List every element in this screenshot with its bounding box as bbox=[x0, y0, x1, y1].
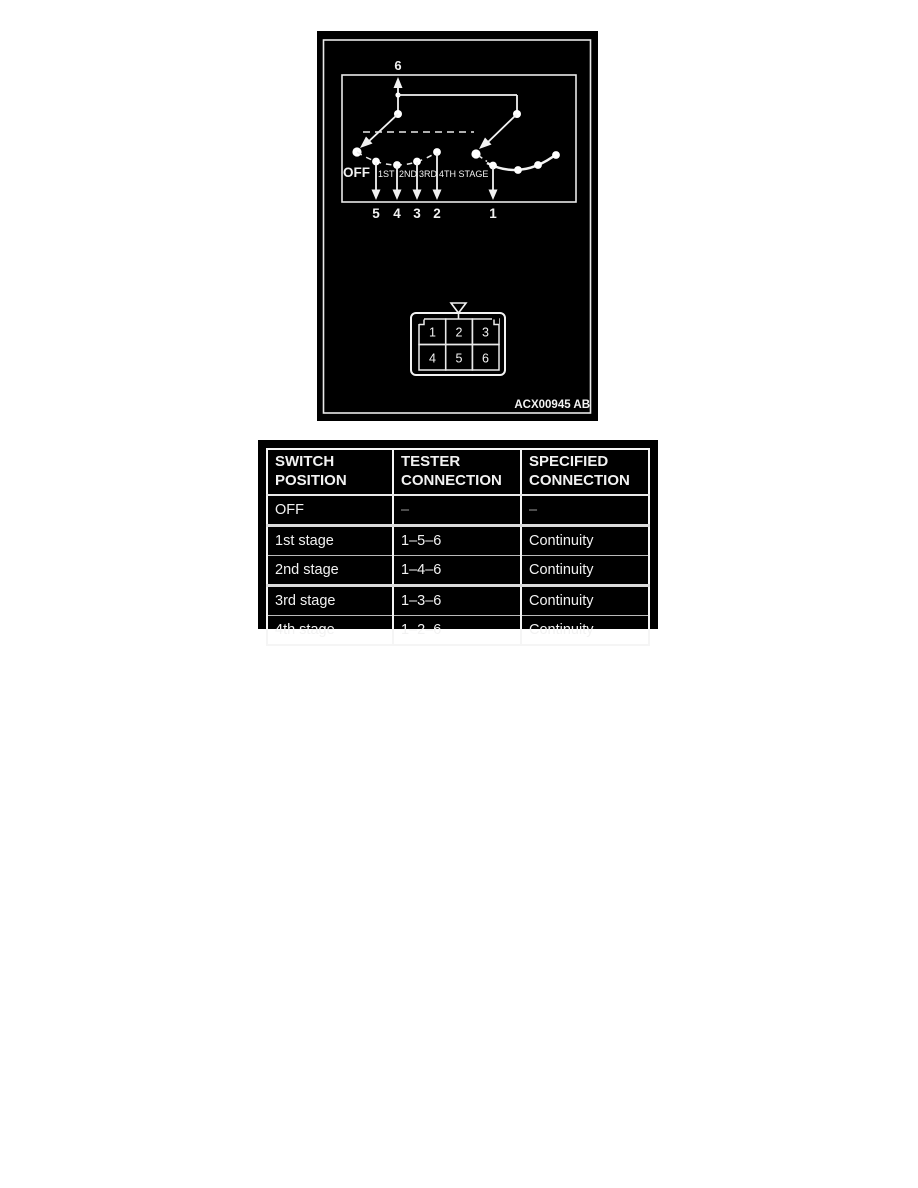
table-row-4th-stage: 4th stage 1–2–6 Continuity bbox=[267, 616, 649, 646]
pin-2-label: 2 bbox=[456, 326, 463, 340]
pin-3-label: 3 bbox=[482, 326, 489, 340]
left-wiper-arrow-icon bbox=[360, 137, 373, 149]
terminal-4-label: 4 bbox=[393, 206, 401, 221]
terminal-1-label: 1 bbox=[489, 206, 497, 221]
header-switch-position: SWITCH POSITION bbox=[267, 449, 393, 495]
right-wiper-arrow-icon bbox=[479, 138, 492, 150]
stage-label-4th: 4TH STAGE bbox=[439, 169, 488, 179]
cell-specified: – bbox=[521, 495, 649, 526]
cell-tester: 1–3–6 bbox=[393, 586, 521, 616]
table-header-row: SWITCH POSITION TESTER CONNECTION SPECIF… bbox=[267, 449, 649, 495]
cell-position: 3rd stage bbox=[267, 586, 393, 616]
right-contact-dot-b bbox=[514, 166, 522, 174]
pin-5-label: 5 bbox=[456, 352, 463, 366]
cell-specified: Continuity bbox=[521, 556, 649, 586]
cell-tester: – bbox=[393, 495, 521, 526]
table-row-off: OFF – – bbox=[267, 495, 649, 526]
stage-label-3rd: 3RD bbox=[419, 169, 438, 179]
switch-schematic-figure: 6 OFF 1ST 2ND bbox=[317, 31, 598, 421]
right-wiper-arm bbox=[486, 114, 517, 144]
continuity-table-panel: SWITCH POSITION TESTER CONNECTION SPECIF… bbox=[258, 440, 658, 629]
left-wiper-arm bbox=[367, 114, 398, 143]
table-row-2nd-stage: 2nd stage 1–4–6 Continuity bbox=[267, 556, 649, 586]
pin-1-label: 1 bbox=[429, 326, 436, 340]
right-contact-dot-c bbox=[534, 161, 542, 169]
cell-tester: 1–2–6 bbox=[393, 616, 521, 646]
terminal-2-label: 2 bbox=[433, 206, 441, 221]
cell-position: OFF bbox=[267, 495, 393, 526]
cell-position: 1st stage bbox=[267, 526, 393, 556]
table-row-3rd-stage: 3rd stage 1–3–6 Continuity bbox=[267, 586, 649, 616]
figure-code: ACX00945 AB bbox=[514, 399, 590, 411]
cell-tester: 1–4–6 bbox=[393, 556, 521, 586]
stage-label-1st: 1ST bbox=[378, 169, 395, 179]
right-contact-bridge bbox=[487, 153, 558, 170]
off-label: OFF bbox=[343, 165, 370, 180]
cell-specified: Continuity bbox=[521, 526, 649, 556]
manual-page: { "figure": { "code": "ACX00945 AB", "to… bbox=[0, 0, 918, 1188]
right-arc-dashed-link bbox=[479, 156, 487, 162]
circuit-box bbox=[342, 75, 576, 202]
cell-tester: 1–5–6 bbox=[393, 526, 521, 556]
connector-notch-left bbox=[417, 317, 424, 324]
cell-position: 4th stage bbox=[267, 616, 393, 646]
header-tester-connection: TESTER CONNECTION bbox=[393, 449, 521, 495]
stage-label-2nd: 2ND bbox=[399, 169, 418, 179]
continuity-table: SWITCH POSITION TESTER CONNECTION SPECIF… bbox=[266, 448, 650, 646]
header-specified-connection: SPECIFIED CONNECTION bbox=[521, 449, 649, 495]
terminal-6-label: 6 bbox=[394, 58, 401, 73]
terminal-5-label: 5 bbox=[372, 206, 380, 221]
right-contact-dot-d bbox=[552, 151, 560, 159]
connector-notch-right bbox=[492, 317, 499, 324]
terminal-6-arrow-icon bbox=[394, 77, 403, 88]
cell-specified: Continuity bbox=[521, 616, 649, 646]
cell-position: 2nd stage bbox=[267, 556, 393, 586]
connector-pointer-icon bbox=[451, 303, 466, 313]
terminal-3-label: 3 bbox=[413, 206, 421, 221]
pin-6-label: 6 bbox=[482, 352, 489, 366]
cell-specified: Continuity bbox=[521, 586, 649, 616]
pin-4-label: 4 bbox=[429, 352, 436, 366]
right-wiper-tip-dot bbox=[471, 149, 480, 158]
terminal-arrowheads bbox=[372, 190, 498, 201]
switch-schematic-svg: 6 OFF 1ST 2ND bbox=[317, 31, 598, 421]
table-row-1st-stage: 1st stage 1–5–6 Continuity bbox=[267, 526, 649, 556]
